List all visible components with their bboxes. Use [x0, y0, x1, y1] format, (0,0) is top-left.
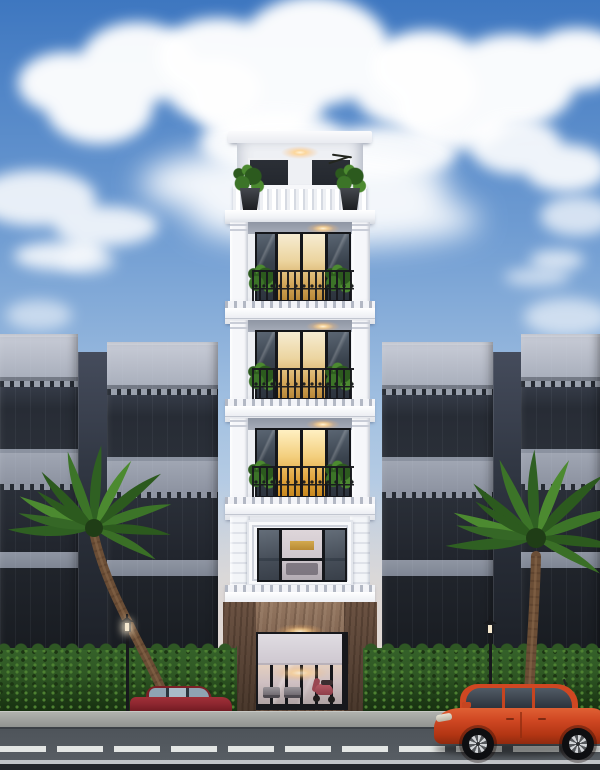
interior-bench	[263, 687, 280, 698]
door-handle	[538, 718, 546, 720]
door-handle	[506, 718, 514, 720]
pilaster-right	[352, 418, 370, 500]
rear-wheel	[562, 728, 594, 760]
orange-hatchback	[434, 684, 600, 764]
pilaster-left	[230, 418, 248, 500]
interior-artwork	[290, 541, 314, 550]
wheel-hub	[476, 742, 480, 746]
balcony-floor-5	[225, 222, 375, 322]
hatchback-b-pillar	[502, 688, 505, 709]
storefront-transom	[258, 634, 342, 665]
cloud	[524, 298, 600, 336]
window-pane-dark-left	[259, 530, 279, 580]
cloud	[158, 18, 278, 96]
quoin-right	[350, 516, 370, 592]
picture-window-glass	[257, 528, 347, 582]
cloud	[372, 30, 482, 104]
main-building	[222, 126, 378, 716]
cloud	[18, 52, 113, 114]
hatchback-c-pillar	[532, 688, 535, 709]
hatchback-door-seam	[520, 712, 522, 738]
pilaster-right	[352, 320, 370, 402]
picture-window-frame	[247, 520, 353, 586]
scooter-body	[315, 684, 333, 695]
scooter	[310, 675, 338, 704]
scooter-wheel	[328, 696, 335, 703]
scooter-seat	[321, 680, 333, 685]
balcony-floor-4	[225, 320, 375, 420]
bottom-edge-dark	[0, 764, 600, 770]
wrought-iron-railing	[252, 466, 354, 500]
balcony-floor-3	[225, 418, 375, 518]
street-scene	[0, 0, 600, 770]
storefront-glass	[258, 665, 342, 704]
palm-tree-left	[2, 440, 214, 716]
cloud	[6, 300, 72, 330]
pilaster-left	[230, 222, 248, 304]
ground-floor-stone	[223, 602, 377, 712]
wrought-iron-railing	[252, 368, 354, 402]
side-mirror	[462, 702, 471, 708]
scooter-wheel	[313, 695, 320, 702]
interior-bench	[284, 687, 301, 698]
interior-furniture	[286, 563, 318, 575]
pilaster-right	[352, 222, 370, 304]
cloud	[60, 248, 116, 274]
hatchback-windows	[466, 688, 572, 709]
cloud	[470, 118, 562, 174]
red-sedan	[130, 686, 232, 714]
front-wheel	[462, 728, 494, 760]
storefront-opening	[256, 632, 348, 710]
window-pane-dark-right	[325, 530, 345, 580]
roof-slab	[228, 131, 372, 143]
wrought-iron-railing	[252, 270, 354, 304]
pilaster-left	[230, 320, 248, 402]
lamp-glass	[125, 623, 129, 631]
lamp-glass	[488, 625, 492, 633]
picture-window-floor	[225, 516, 375, 604]
palm-tree-right	[424, 446, 600, 716]
wheel-hub	[576, 742, 580, 746]
